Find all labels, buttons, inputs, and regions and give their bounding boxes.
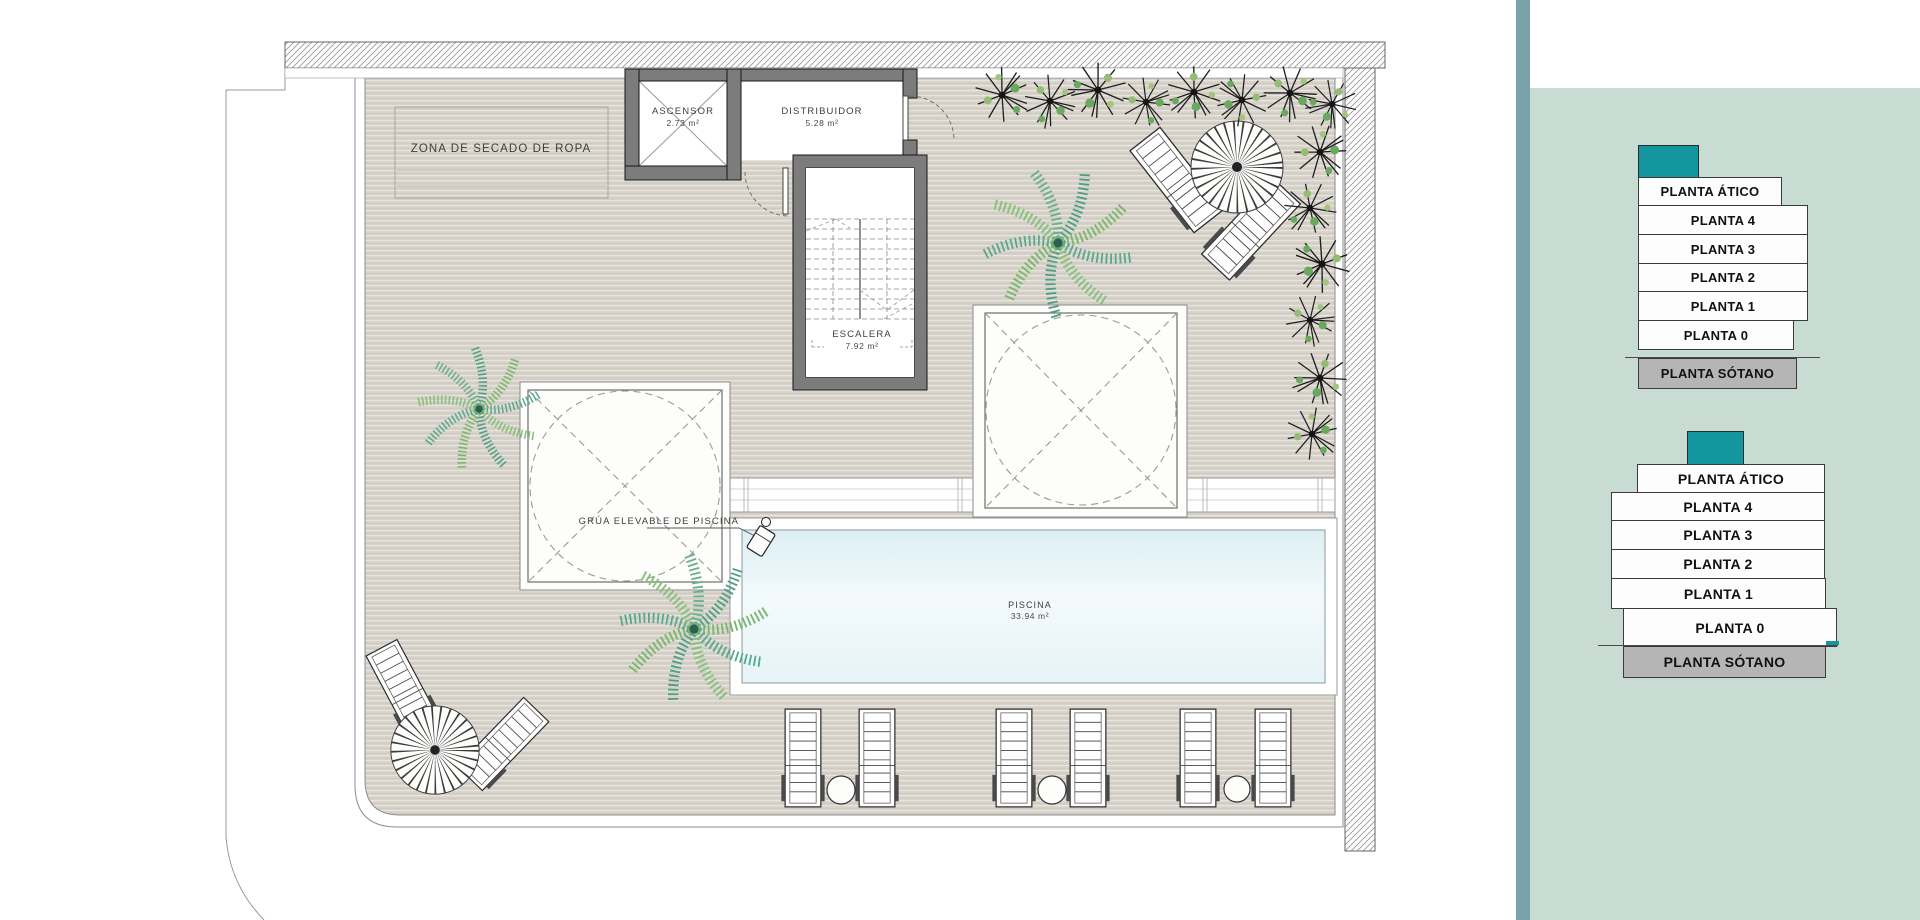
roof-plan-viewer: ZONA DE SECADO DE ROPA PISCINA 33.94 m² bbox=[0, 0, 1920, 920]
selected-floor-indicator bbox=[1687, 431, 1744, 465]
floor-button-planta-0[interactable]: PLANTA 0 bbox=[1623, 608, 1837, 647]
distributor-area-label: 5.28 m² bbox=[805, 118, 838, 128]
skylight-right bbox=[973, 305, 1187, 517]
floor-button-planta-2[interactable]: PLANTA 2 bbox=[1638, 263, 1808, 292]
pool-area-label: 33.94 m² bbox=[1011, 611, 1049, 621]
distributor-label: DISTRIBUIDOR bbox=[781, 106, 862, 117]
floor-button-planta-4[interactable]: PLANTA 4 bbox=[1638, 205, 1808, 235]
elevator-label: ASCENSOR bbox=[652, 106, 714, 117]
pool-label: PISCINA bbox=[1008, 600, 1052, 610]
selected-floor-indicator bbox=[1638, 145, 1699, 178]
floor-button-planta-0[interactable]: PLANTA 0 bbox=[1638, 320, 1794, 350]
stairs-area-label: 7.92 m² bbox=[845, 341, 878, 351]
lounger bbox=[781, 709, 824, 807]
lounger bbox=[1251, 709, 1294, 807]
floor-button-planta-1[interactable]: PLANTA 1 bbox=[1611, 578, 1826, 609]
floor-button-planta-atico[interactable]: PLANTA ÁTICO bbox=[1637, 464, 1825, 493]
drying-zone-label: ZONA DE SECADO DE ROPA bbox=[411, 143, 592, 155]
elevator-area-label: 2.73 m² bbox=[666, 118, 699, 128]
swimming-pool: PISCINA 33.94 m² bbox=[730, 518, 1337, 695]
side-table bbox=[827, 776, 855, 804]
property-boundary bbox=[226, 68, 285, 920]
floor-button-planta-4[interactable]: PLANTA 4 bbox=[1611, 492, 1825, 521]
pool-crane-label: GRÚA ELEVABLE DE PISCINA bbox=[579, 516, 739, 527]
side-table bbox=[1038, 776, 1066, 804]
lounger bbox=[992, 709, 1035, 807]
floor-button-planta-sotano[interactable]: PLANTA SÓTANO bbox=[1638, 358, 1797, 389]
floor-button-planta-3[interactable]: PLANTA 3 bbox=[1611, 520, 1825, 550]
floor-button-planta-sotano[interactable]: PLANTA SÓTANO bbox=[1623, 646, 1826, 678]
floor-plan: ZONA DE SECADO DE ROPA PISCINA 33.94 m² bbox=[0, 0, 1516, 920]
floor-button-planta-3[interactable]: PLANTA 3 bbox=[1638, 234, 1808, 264]
side-table bbox=[1224, 776, 1250, 802]
skylight-left bbox=[520, 382, 730, 590]
sidebar-divider bbox=[1516, 0, 1530, 920]
lounger bbox=[855, 709, 898, 807]
lounger bbox=[1066, 709, 1109, 807]
lounger bbox=[1176, 709, 1219, 807]
floor-button-planta-atico[interactable]: PLANTA ÁTICO bbox=[1638, 177, 1782, 206]
ground-line-tick bbox=[1826, 641, 1839, 645]
stairs-label: ESCALERA bbox=[832, 329, 892, 340]
floor-button-planta-2[interactable]: PLANTA 2 bbox=[1611, 549, 1825, 579]
floor-button-planta-1[interactable]: PLANTA 1 bbox=[1638, 291, 1808, 321]
